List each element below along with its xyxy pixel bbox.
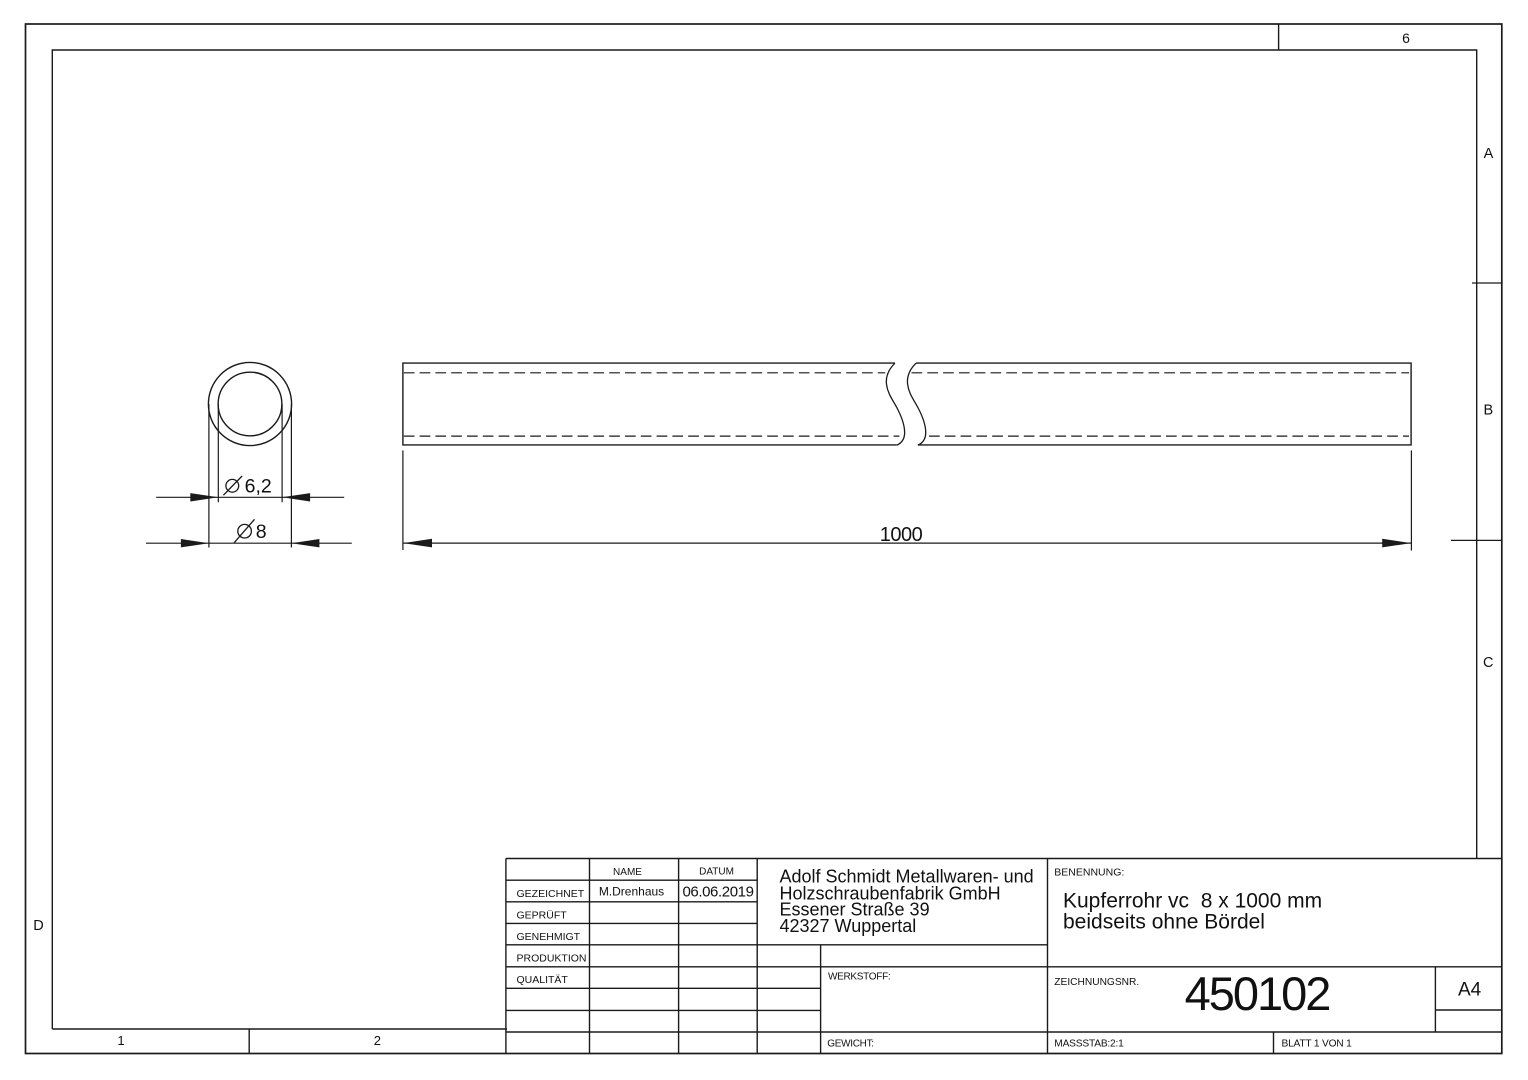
svg-text:1: 1 [117, 1033, 124, 1048]
svg-text:A4: A4 [1458, 979, 1482, 1000]
svg-text:2: 2 [374, 1033, 381, 1048]
svg-text:BENENNUNG:: BENENNUNG: [1054, 867, 1124, 879]
svg-text:6: 6 [1402, 30, 1410, 46]
svg-text:GEZEICHNET: GEZEICHNET [517, 888, 585, 900]
svg-text:Kupferrohr vc 8 x 1000 mm: Kupferrohr vc 8 x 1000 mm [1063, 890, 1322, 913]
svg-text:B: B [1483, 403, 1493, 419]
svg-text:WERKSTOFF:: WERKSTOFF: [828, 971, 890, 982]
svg-text:GEWICHT:: GEWICHT: [827, 1039, 874, 1050]
svg-text:42327 Wuppertal: 42327 Wuppertal [780, 916, 917, 936]
svg-text:PRODUKTION: PRODUKTION [517, 953, 587, 965]
svg-text:450102: 450102 [1185, 967, 1330, 1020]
svg-text:M.Drenhaus: M.Drenhaus [599, 885, 664, 899]
svg-text:GENEHMIGT: GENEHMIGT [517, 931, 581, 943]
svg-text:DATUM: DATUM [699, 866, 734, 877]
svg-text:6,2: 6,2 [245, 476, 272, 498]
svg-text:C: C [1483, 655, 1493, 671]
svg-text:BLATT 1 VON 1: BLATT 1 VON 1 [1282, 1038, 1353, 1049]
svg-text:QUALITÄT: QUALITÄT [517, 974, 569, 986]
svg-text:ZEICHNUNGSNR.: ZEICHNUNGSNR. [1054, 977, 1139, 988]
svg-text:8: 8 [256, 521, 267, 543]
svg-text:06.06.2019: 06.06.2019 [682, 883, 753, 900]
svg-text:MASSSTAB:2:1: MASSSTAB:2:1 [1054, 1038, 1124, 1049]
svg-text:1000: 1000 [880, 524, 923, 546]
svg-text:A: A [1484, 146, 1494, 162]
svg-text:GEPRÜFT: GEPRÜFT [517, 910, 568, 922]
svg-text:D: D [33, 918, 43, 934]
svg-text:beidseits ohne Bördel: beidseits ohne Bördel [1063, 911, 1265, 934]
svg-text:NAME: NAME [613, 867, 642, 878]
